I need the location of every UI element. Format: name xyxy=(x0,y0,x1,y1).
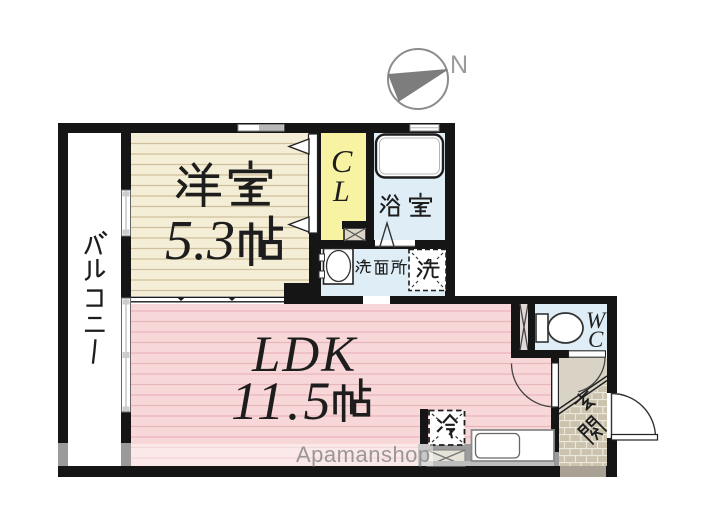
svg-text:11.5: 11.5 xyxy=(231,371,334,431)
svg-text:5.3: 5.3 xyxy=(165,210,235,272)
svg-text:L: L xyxy=(332,175,350,208)
svg-text:C: C xyxy=(588,327,604,352)
svg-text:N: N xyxy=(450,51,468,79)
svg-text:Apamanshop: Apamanshop xyxy=(296,442,431,467)
svg-text:C: C xyxy=(331,143,353,179)
